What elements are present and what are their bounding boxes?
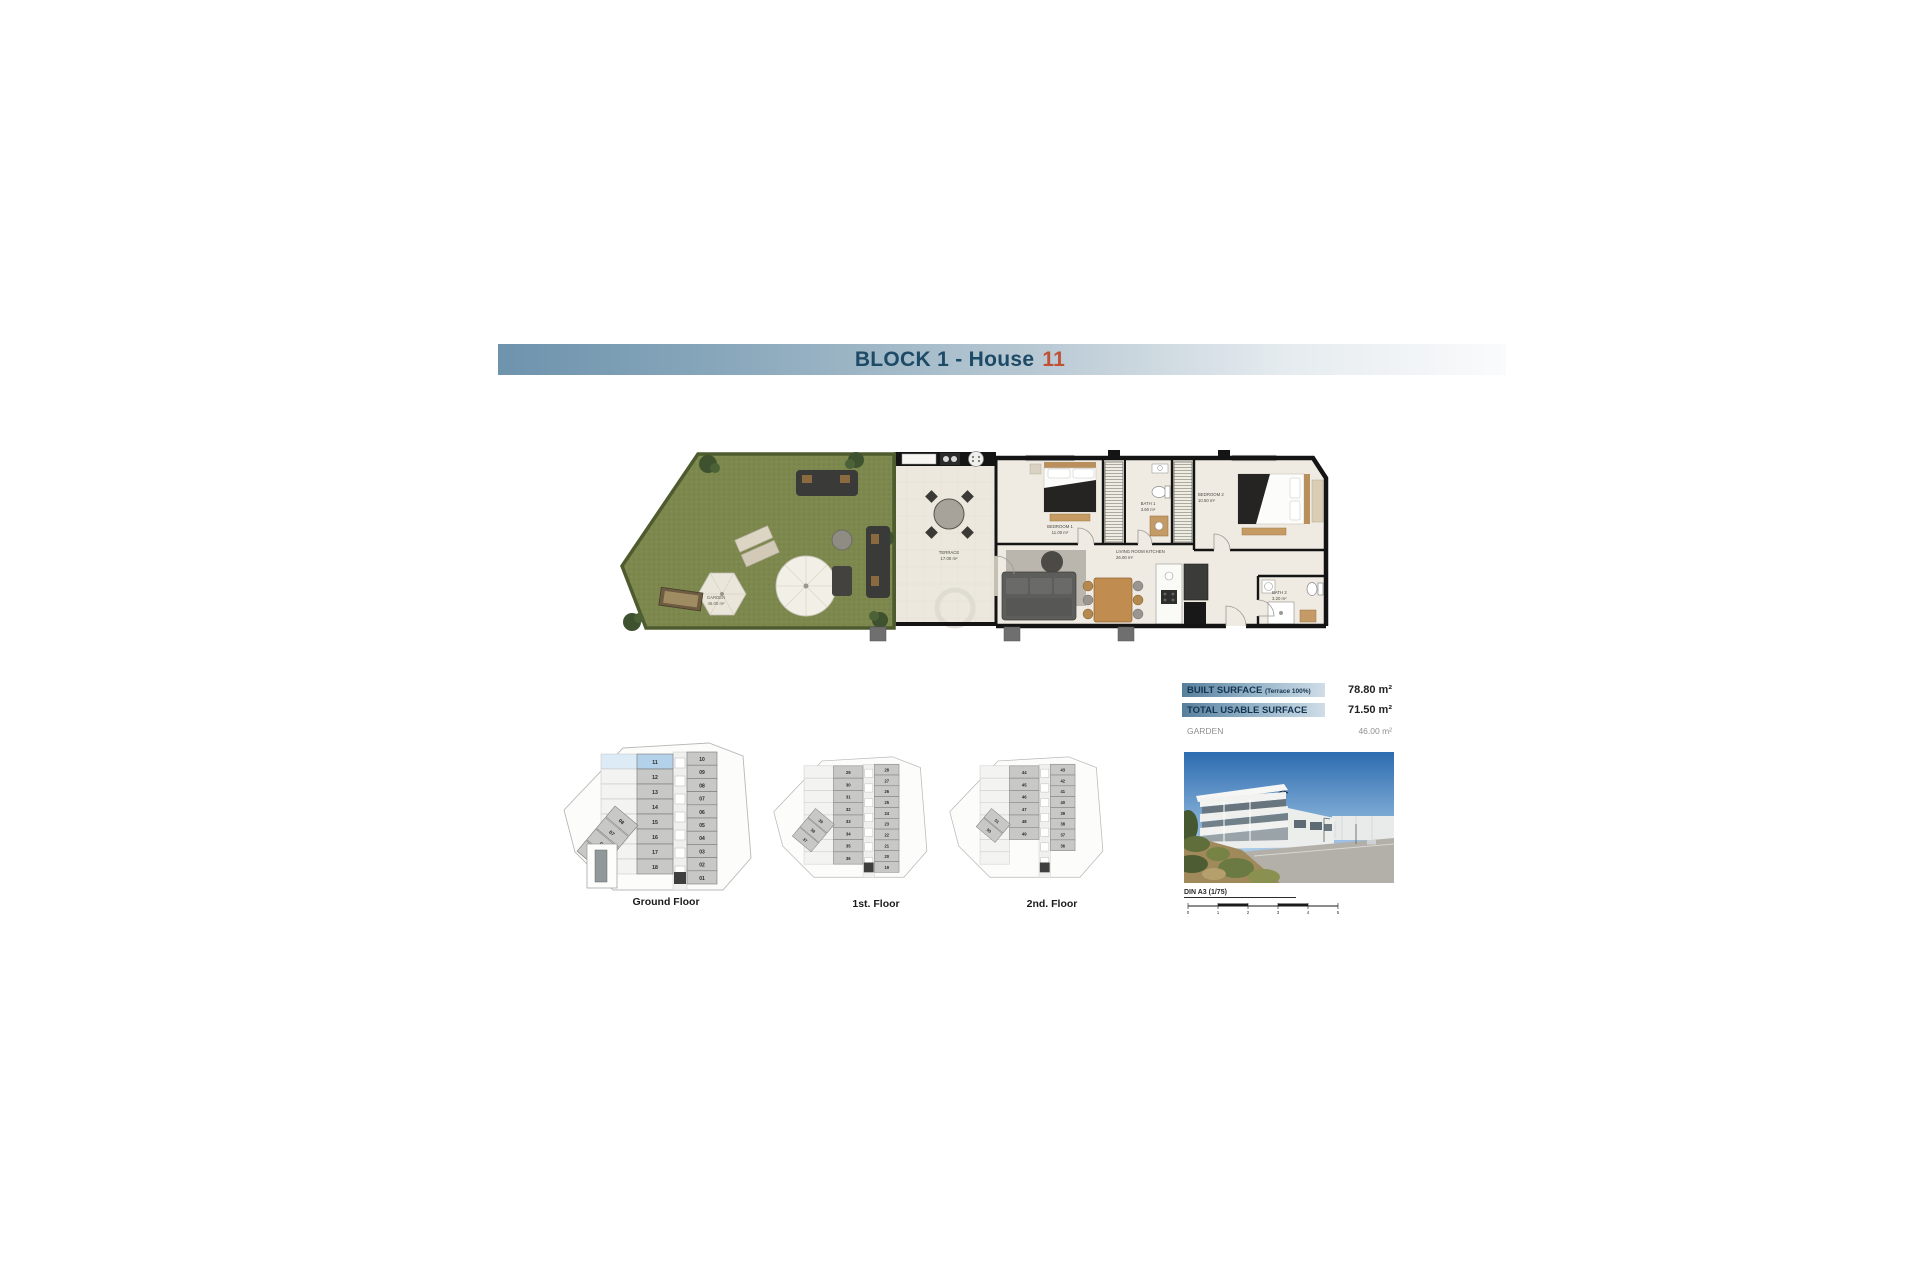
svg-text:02: 02 [699,863,705,869]
svg-text:16: 16 [652,835,658,841]
building-photo [1184,752,1394,883]
scale-label: DIN A3 (1/75) [1184,889,1296,898]
built-surface-value: 78.80 m² [1348,684,1392,696]
room-label-garden: GARDEN [707,595,725,600]
svg-text:18: 18 [652,865,658,871]
summary-row-usable: TOTAL USABLE SURFACE 71.50 m² [1182,703,1394,717]
wardrobe-bedroom1 [1105,462,1123,542]
floor-label-first: 1st. Floor [791,898,961,910]
svg-text:06: 06 [699,810,705,816]
usable-surface-label: TOTAL USABLE SURFACE [1187,705,1307,716]
page-title: BLOCK 1 - House11 [855,348,1065,372]
svg-text:36: 36 [1060,843,1065,848]
svg-text:41: 41 [1060,789,1065,794]
svg-text:17.00 m²: 17.00 m² [941,556,959,561]
usable-surface-value: 71.50 m² [1348,704,1392,716]
svg-text:4: 4 [1307,910,1310,915]
svg-text:14: 14 [652,805,658,811]
page-title-text: BLOCK 1 - House [855,348,1035,371]
svg-text:32: 32 [846,807,851,812]
room-label-living: LIVING ROOM KITCHEN [1116,549,1165,554]
svg-text:29: 29 [846,770,851,775]
garden-side-table [832,530,852,550]
keyplan-ground-floor: 1112131415161718100908070605040302010807… [556,740,768,910]
room-label-terrace: TERRACE [939,550,960,555]
svg-text:17: 17 [652,850,658,856]
svg-text:48: 48 [1022,819,1027,824]
svg-text:25: 25 [884,800,889,805]
svg-text:30: 30 [846,782,851,787]
room-label-bedroom2: BEDROOM 2 [1198,492,1224,497]
main-floor-plan: GARDEN 46.00 m² TE [618,448,1330,648]
svg-text:43: 43 [1060,768,1065,773]
svg-text:27: 27 [884,778,889,783]
terrace-area: TERRACE 17.00 m² [894,452,996,627]
outdoor-sink [969,452,984,467]
car [1367,840,1376,845]
svg-text:21: 21 [884,843,889,848]
house-number: 11 [1042,348,1065,371]
svg-text:49: 49 [1022,831,1027,836]
svg-text:44: 44 [1022,770,1027,775]
svg-text:07: 07 [699,797,705,803]
svg-text:36: 36 [846,856,851,861]
svg-text:38: 38 [1060,822,1065,827]
svg-text:2: 2 [1247,910,1250,915]
svg-text:3: 3 [1277,910,1280,915]
svg-text:3.60 m²: 3.60 m² [1141,507,1156,512]
garden-surface-label: GARDEN [1187,726,1223,736]
svg-text:04: 04 [699,836,705,842]
svg-text:08: 08 [699,783,705,789]
svg-text:3.20 m²: 3.20 m² [1272,596,1287,601]
keyplan-second-floor: 44454647484943424140393837365150 [944,754,1116,894]
garden-area: GARDEN 46.00 m² [622,452,894,631]
kitchen-counter [1156,564,1208,624]
svg-text:22: 22 [884,832,889,837]
room-label-bath2: BATH 2 [1272,590,1287,595]
svg-text:0: 0 [1187,910,1190,915]
svg-text:45: 45 [1022,782,1027,787]
svg-text:24: 24 [884,811,889,816]
brochure-page: BLOCK 1 - House11 [0,0,1920,1280]
svg-text:31: 31 [846,795,851,800]
svg-text:46: 46 [1022,795,1027,800]
svg-text:47: 47 [1022,807,1027,812]
svg-text:12: 12 [652,775,658,781]
keyplan-first-floor: 2930313233343536282726252423222120193938… [768,754,940,894]
floor-label-second: 2nd. Floor [967,898,1137,910]
svg-text:20: 20 [884,854,889,859]
dining-set [1083,578,1143,622]
terrace-note: (Terrace 100%) [1265,688,1311,695]
svg-text:5: 5 [1337,910,1340,915]
floor-label-ground: Ground Floor [560,896,772,908]
title-banner: BLOCK 1 - House11 [498,344,1506,375]
svg-text:46.00 m²: 46.00 m² [708,601,726,606]
svg-text:05: 05 [699,823,705,829]
built-surface-label: BUILT SURFACE [1187,685,1262,696]
svg-text:28: 28 [884,768,889,773]
svg-text:37: 37 [1060,832,1065,837]
svg-text:39: 39 [1060,811,1065,816]
svg-text:34: 34 [846,831,851,836]
scale-bar: 012345 [1184,900,1344,915]
wardrobe-bedroom2 [1174,462,1192,542]
svg-text:13: 13 [652,790,658,796]
room-label-bedroom1: BEDROOM 1 [1047,524,1073,529]
living-room-furniture [1002,550,1086,620]
svg-text:19: 19 [884,865,889,870]
svg-text:10: 10 [699,757,705,763]
room-label-bath1: BATH 1 [1141,501,1156,506]
summary-row-garden: GARDEN 46.00 m² [1182,723,1394,737]
svg-text:11: 11 [652,760,658,766]
svg-text:01: 01 [699,876,705,882]
surface-summary-table: BUILT SURFACE (Terrace 100%) 78.80 m² TO… [1182,683,1394,743]
svg-text:26: 26 [884,789,889,794]
svg-text:1: 1 [1217,910,1220,915]
svg-text:42: 42 [1060,778,1065,783]
pillar-tabs [870,627,1134,641]
svg-text:03: 03 [699,849,705,855]
svg-text:26.00 m²: 26.00 m² [1116,555,1134,560]
svg-text:10.50 m²: 10.50 m² [1198,498,1216,503]
outdoor-counter [902,454,936,464]
svg-text:23: 23 [884,822,889,827]
svg-text:33: 33 [846,819,851,824]
svg-text:15: 15 [652,820,658,826]
garden-surface-value: 46.00 m² [1358,726,1392,736]
svg-text:11.00 m²: 11.00 m² [1052,530,1069,535]
svg-text:35: 35 [846,844,851,849]
svg-text:40: 40 [1060,800,1065,805]
summary-row-built: BUILT SURFACE (Terrace 100%) 78.80 m² [1182,683,1394,697]
svg-text:09: 09 [699,770,705,776]
terrace-slider [994,556,998,596]
scale-tick-labels: 012345 [1187,910,1340,915]
